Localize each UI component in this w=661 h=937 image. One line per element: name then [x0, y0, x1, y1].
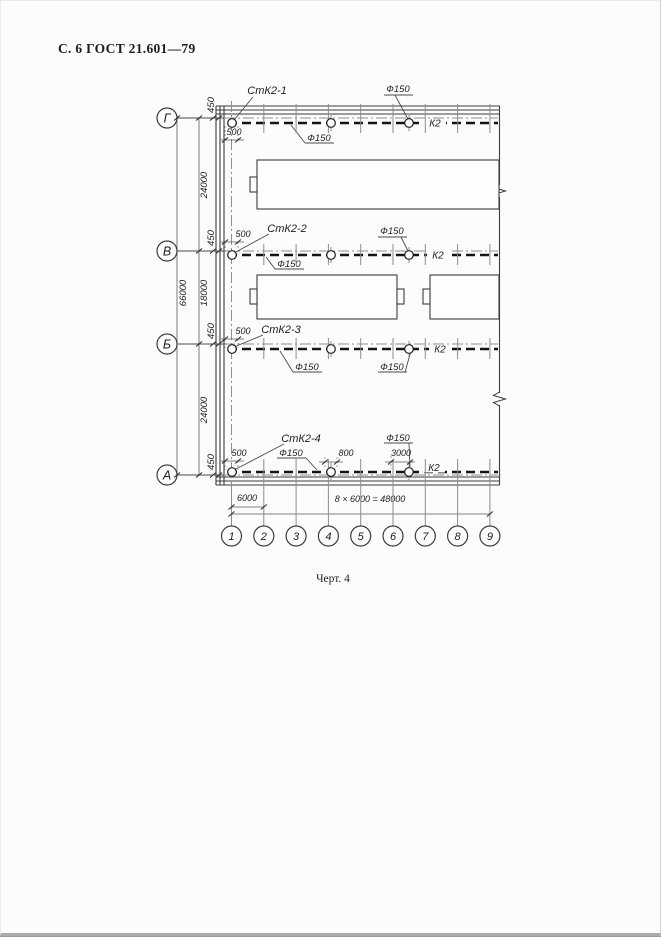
equipment-block [257, 160, 499, 209]
gost-document-page: С. 6 ГОСТ 21.601—79 66000 24000 18000 [0, 0, 661, 936]
equipment-notch [397, 289, 404, 304]
pipe-label: К2 [434, 345, 446, 356]
pipe-row-v: В 450 СтК2-2 Ф150 Ф150 500 К2 [157, 223, 498, 270]
drain-riser-symbol [228, 119, 237, 128]
riser-leader [234, 97, 253, 120]
riser-tag: СтК2-4 [281, 433, 321, 445]
riser-tag: СтК2-3 [261, 324, 301, 336]
column-axis-number: 8 [455, 531, 462, 543]
column-axis-number: 4 [325, 531, 331, 543]
pipe-diameter-label: Ф150 [279, 448, 303, 459]
pipe-diameter-label: Ф150 [380, 362, 404, 373]
pipe-diameter-label: Ф150 [380, 226, 404, 237]
equipment-block [257, 275, 397, 319]
row-axis-letter: Г [164, 111, 172, 125]
drain-riser-symbol [405, 345, 414, 354]
figure-4-sewer-plan-drawing: С. 6 ГОСТ 21.601—79 66000 24000 18000 [1, 1, 661, 937]
riser-leader [234, 335, 263, 347]
row-axis-letter: А [162, 468, 171, 482]
dim-3000: 3000 [391, 448, 411, 458]
drain-riser-symbol [327, 345, 336, 354]
drain-riser-symbol [405, 251, 414, 260]
dim-axis-offset: 450 [206, 453, 217, 470]
label-leader [395, 95, 409, 121]
dim-riser-offset: 500 [231, 448, 246, 458]
drain-riser-symbol [228, 251, 237, 260]
dim-span-b-a: 24000 [199, 396, 210, 424]
equipment-notch [250, 289, 257, 304]
drain-riser-symbol [327, 119, 336, 128]
dim-axis-offset: 450 [206, 96, 217, 113]
dim-riser-offset: 500 [235, 326, 250, 336]
riser-tag: СтК2-2 [267, 223, 307, 235]
dim-axis-offset: 450 [206, 322, 217, 339]
row-axis-letter: В [163, 244, 171, 258]
riser-tag: СтК2-1 [247, 85, 287, 97]
label-leader [306, 458, 317, 470]
dim-first-bay: 6000 [237, 493, 257, 503]
pipe-diameter-label: Ф150 [277, 259, 301, 270]
pipe-diameter-label: Ф150 [307, 133, 331, 144]
dim-riser-offset: 500 [226, 127, 241, 137]
drain-riser-symbol [228, 345, 237, 354]
pipe-label: К2 [428, 463, 440, 474]
pipe-diameter-label: Ф150 [386, 433, 410, 444]
column-axis-number: 2 [260, 531, 267, 543]
dim-riser-offset: 500 [235, 229, 250, 239]
label-leader [405, 351, 411, 372]
drain-riser-symbol [327, 468, 336, 477]
figure-caption: Черт. 4 [316, 573, 350, 585]
dim-span-g-v: 24000 [199, 171, 210, 199]
pipe-label: К2 [429, 119, 441, 130]
column-axis-number: 3 [293, 531, 300, 543]
break-mark-gap [495, 393, 504, 405]
equipment-notch [250, 177, 257, 192]
column-axis-number: 6 [390, 531, 397, 543]
label-leader [280, 351, 293, 372]
dim-span-v-b: 18000 [199, 279, 210, 306]
dim-bay-formula: 8 × 6000 = 48000 [335, 494, 406, 504]
column-axis-number: 1 [228, 531, 234, 543]
page-header: С. 6 ГОСТ 21.601—79 [58, 41, 196, 56]
column-axis-number: 9 [487, 531, 493, 543]
label-leader [291, 125, 305, 143]
pipe-label: К2 [432, 251, 444, 262]
drain-riser-symbol [327, 251, 336, 260]
pipe-diameter-label: Ф150 [386, 84, 410, 95]
row-axis-letter: Б [163, 337, 171, 351]
column-axis-number: 5 [358, 531, 365, 543]
dim-total-height: 66000 [178, 279, 189, 306]
equipment-block [430, 275, 499, 319]
pipe-diameter-label: Ф150 [295, 362, 319, 373]
drain-riser-symbol [405, 119, 414, 128]
dim-800: 800 [338, 448, 353, 458]
column-axis-number: 7 [422, 531, 429, 543]
drain-riser-symbol [228, 468, 237, 477]
label-leader [266, 257, 275, 269]
dim-axis-offset: 450 [206, 229, 217, 246]
equipment-notch [423, 289, 430, 304]
equipment-outlines [250, 160, 499, 319]
left-dimensions: 66000 24000 18000 24000 [177, 118, 210, 475]
drain-riser-symbol [405, 468, 414, 477]
